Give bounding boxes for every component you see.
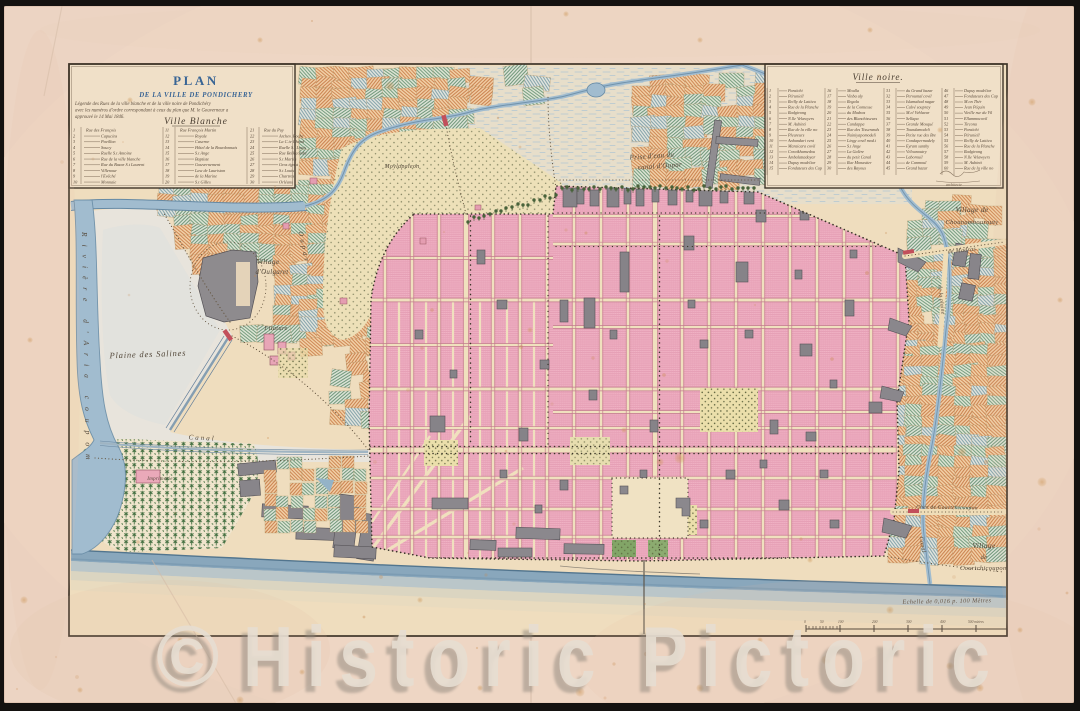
svg-text:Historic Pictoric: Historic Pictoric <box>243 611 1003 705</box>
svg-text:©: © <box>156 609 219 705</box>
